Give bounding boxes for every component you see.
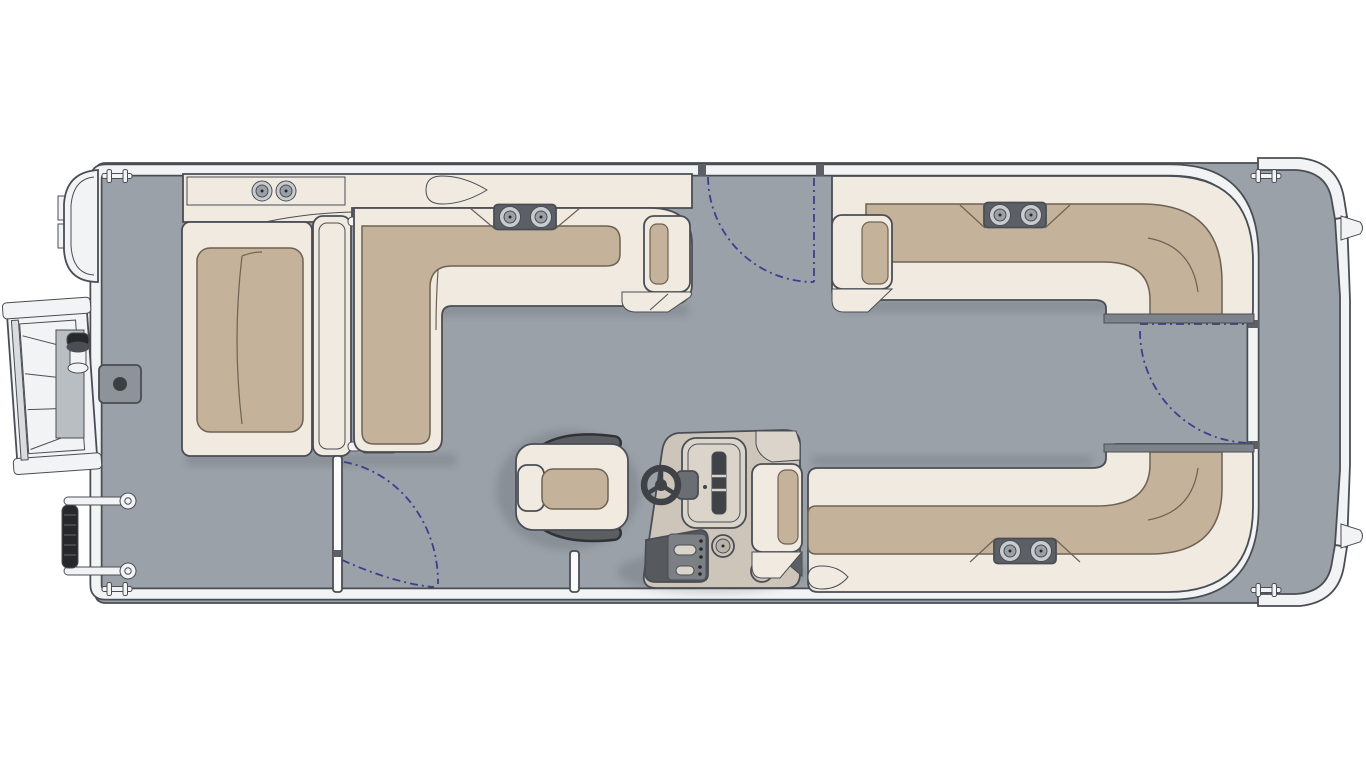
rear-bottom-armrest-inset — [778, 470, 798, 544]
bow-boarding-ladder — [2, 297, 102, 475]
port-gate-post — [570, 551, 579, 592]
port-gate-hinge — [333, 550, 342, 557]
chair-headrest — [518, 465, 544, 511]
bow-nose-cap — [58, 170, 98, 282]
stern-tab-top — [1341, 216, 1363, 240]
gauge-cluster — [712, 452, 726, 514]
port-gate-panel-open — [333, 456, 342, 592]
table-base-socket — [113, 377, 127, 391]
port-bench-cupholders — [494, 205, 556, 230]
top-gate-post-left — [698, 164, 706, 176]
gate-rod-top-eye — [120, 493, 136, 509]
rear-top-bench-group — [832, 176, 1254, 323]
rear-bottom-end-strip — [1104, 444, 1254, 452]
pontoon-floorplan-canvas: Pontoon boat floor plan — top view — [0, 0, 1366, 768]
top-gate-post-right — [816, 164, 824, 176]
floorplan-svg: Pontoon boat floor plan — top view — [0, 0, 1366, 768]
bow-armrest-inset — [650, 224, 668, 284]
nose-panel — [64, 170, 98, 282]
switch-pill-1 — [674, 545, 696, 555]
rear-top-cupholders — [984, 203, 1046, 228]
gate-rod-bottom-eye — [120, 563, 136, 579]
rear-top-shadow — [840, 300, 1108, 312]
rear-top-armrest-inset — [862, 222, 888, 284]
gate-rod-top — [64, 497, 128, 505]
bow-tow-knob — [67, 333, 89, 373]
rear-bottom-cupholders — [994, 539, 1056, 564]
stern-tab-bottom — [1341, 524, 1363, 548]
switch-pill-2 — [676, 566, 694, 575]
console-cupholder-1 — [712, 535, 734, 557]
captain-chair — [516, 441, 628, 534]
ignition-dot — [703, 485, 707, 489]
rear-bottom-shadow — [812, 456, 1092, 466]
chair-cushion — [542, 469, 608, 509]
rear-top-end-strip — [1104, 314, 1254, 323]
bow-chaise-cushion — [197, 248, 303, 432]
